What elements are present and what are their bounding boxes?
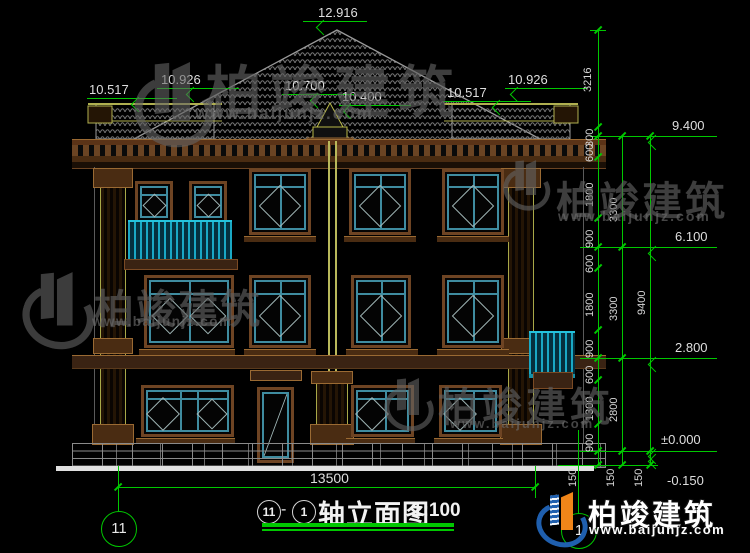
axis-bubble-11: 11 (101, 511, 137, 547)
window-frame (194, 186, 222, 218)
watermark-url: www.baijunjz.com (558, 208, 711, 224)
cornice-dentils (72, 145, 606, 156)
party-wall-line-right (335, 141, 337, 371)
watermark-building-icon (526, 160, 536, 195)
balcony-railing-2f-side (529, 331, 575, 378)
level-label: 9.400 (672, 119, 705, 133)
window-3f-left-unit (249, 169, 311, 235)
drawing-scale: 1:100 (412, 500, 461, 522)
watermark-building-icon (397, 379, 406, 411)
window-frame (140, 186, 168, 218)
overall-dim-line (118, 487, 536, 488)
center-pilaster-capital (311, 371, 353, 384)
window-diamond (146, 397, 180, 431)
door-canopy (250, 370, 302, 381)
right-eave-cap (554, 106, 578, 123)
logo-building-icon (561, 492, 573, 530)
window-diamond (259, 185, 301, 227)
title-axis-bubble-from: 11 (257, 500, 281, 524)
window-frame (356, 280, 406, 343)
watermark-building-icon (515, 161, 524, 191)
window-3f-balcony-left (135, 181, 173, 223)
window-diamond (196, 398, 227, 429)
dim-label: 600 (583, 136, 597, 170)
watermark-building-icon (41, 273, 54, 319)
title-separator: - (281, 503, 286, 517)
watermark-building-icon (172, 62, 190, 121)
watermark-building-icon (57, 272, 73, 326)
overall-dim-label: 13500 (310, 471, 349, 485)
window-diamond (452, 185, 494, 227)
logo-building-icon (550, 495, 559, 526)
cad-elevation-drawing: 12.916 10.517 10.926 10.700 10.400 10.51… (0, 0, 750, 553)
window-1f-wide (141, 385, 234, 437)
dim-label: 3300 (607, 287, 621, 331)
window-frame (447, 174, 499, 230)
window-3f-right-unit-b (442, 169, 504, 235)
window-mullion (180, 392, 182, 430)
window-diamond (196, 193, 220, 217)
level-label: 6.100 (675, 230, 708, 244)
window-2f-right-unit-a (351, 275, 411, 348)
window-frame (254, 174, 306, 230)
stone-base-course (72, 443, 606, 468)
axis-extension-left (118, 466, 119, 511)
window-sill (244, 349, 316, 355)
window-diamond (452, 295, 494, 337)
window-diamond (360, 295, 402, 337)
left-pilaster-base (92, 424, 134, 445)
title-underline-thick (262, 523, 454, 527)
cornice (72, 139, 606, 168)
window-sill (346, 349, 418, 355)
level-label: 2.800 (675, 341, 708, 355)
title-axis-bubble-to: 1 (292, 500, 316, 524)
window-sill (437, 236, 509, 242)
dim-label: 150 (632, 464, 646, 492)
window-2f-right-unit-b (442, 275, 504, 348)
floor-band (72, 355, 606, 369)
window-frame (354, 174, 406, 230)
dim-label: 600 (583, 247, 597, 281)
dim-label: 3216 (581, 58, 595, 102)
level-line-2800 (580, 358, 717, 359)
window-diamond (142, 193, 166, 217)
level-label: -0.150 (667, 474, 704, 488)
dim-label: 9400 (635, 281, 649, 325)
watermark-url: www.baijunjz.com (195, 104, 374, 124)
left-pilaster-band (93, 338, 133, 354)
title-underline-thin (262, 529, 454, 531)
watermark-building-icon (155, 63, 169, 114)
level-label: ±0.000 (661, 433, 701, 447)
level-line (303, 21, 367, 22)
dim-label: 150 (604, 464, 618, 492)
window-sill (139, 349, 235, 355)
window-diamond (359, 185, 401, 227)
window-frame (447, 280, 499, 343)
watermark-url: www.baijunjz.com (92, 314, 233, 329)
window-frame (146, 390, 229, 432)
brand-logo-url: www.baijunjz.com (589, 522, 725, 537)
left-pilaster-capital (93, 168, 133, 188)
window-3f-balcony-right (189, 181, 227, 223)
watermark-url: www.baijunjz.com (450, 416, 594, 431)
level-label: 10.926 (508, 73, 548, 87)
left-eave-cap (88, 106, 112, 123)
window-diamond (259, 295, 301, 337)
window-diamond (355, 397, 389, 431)
level-label: 10.517 (89, 83, 129, 97)
dim-label: 1800 (583, 284, 597, 326)
window-sill (437, 349, 509, 355)
brand-logo: 柏竣建筑 www.baijunjz.com (536, 492, 750, 553)
window-sill (244, 236, 316, 242)
window-3f-right-unit-a (349, 169, 411, 235)
level-line-6100 (580, 247, 717, 248)
window-sill (344, 236, 416, 242)
level-label-ridge: 12.916 (318, 6, 358, 20)
watermark-building-icon (408, 378, 419, 415)
balcony-slab-3f (124, 259, 238, 270)
party-wall-line-left (328, 141, 330, 371)
brand-logo-icon (536, 492, 586, 544)
